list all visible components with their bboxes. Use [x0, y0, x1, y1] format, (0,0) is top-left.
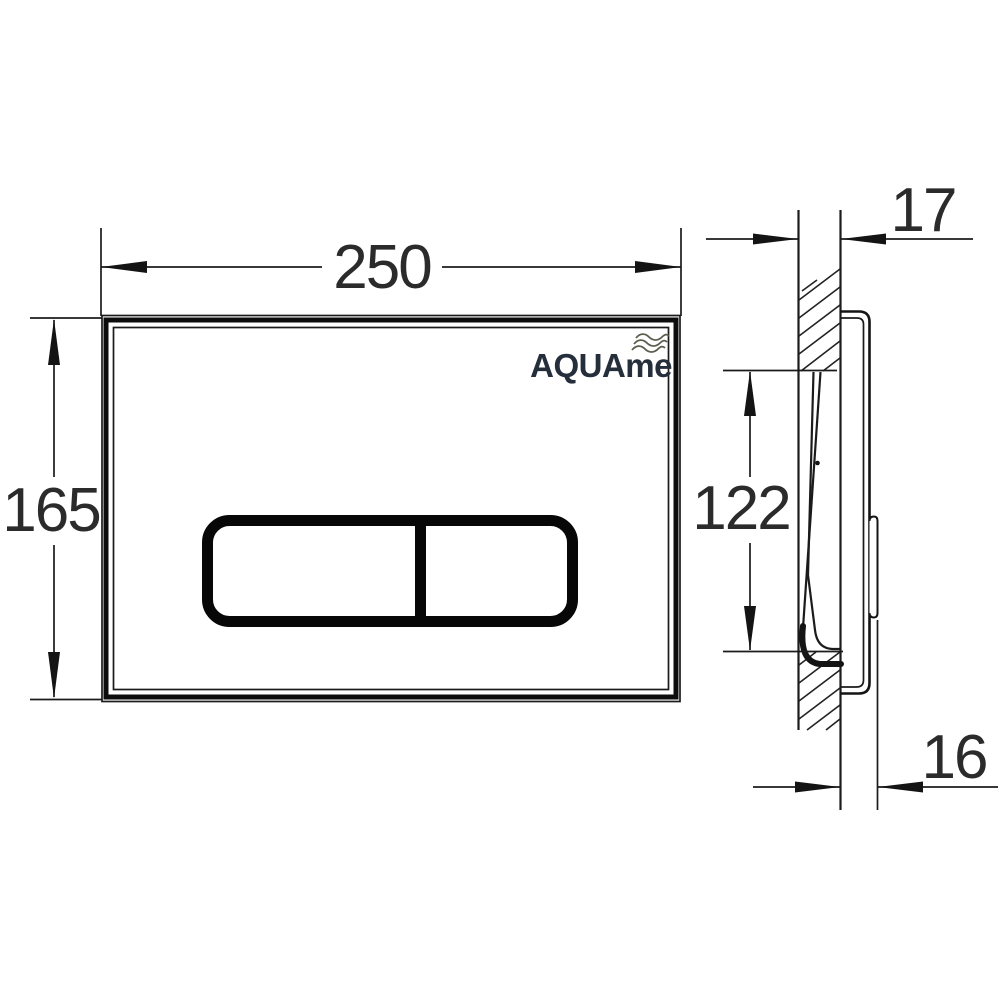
- width-value: 250: [333, 233, 431, 302]
- drawing-canvas: AQUAme 250 165: [0, 0, 1000, 1000]
- flush-buttons: [208, 520, 573, 622]
- mounting-mechanism: [802, 372, 841, 664]
- arrowhead-down: [48, 652, 60, 699]
- arrowhead-right: [753, 234, 798, 245]
- wall-hatching-top: [799, 269, 840, 371]
- arrowhead-up: [744, 371, 756, 416]
- arrowhead-left: [101, 261, 147, 273]
- buttons-outline: [208, 521, 573, 622]
- clamp-hook-inner: [808, 575, 841, 649]
- logo: AQUAme: [530, 334, 672, 384]
- arrowhead-right: [635, 261, 681, 273]
- profile-outer: [840, 312, 870, 694]
- arrowhead-down: [744, 606, 756, 651]
- protrusion-dimension: 16: [753, 620, 998, 810]
- side-view: [799, 210, 878, 810]
- technical-drawing: AQUAme 250 165: [0, 0, 1000, 1000]
- height-dimension: 165: [2, 318, 102, 700]
- height-value: 165: [2, 476, 99, 545]
- arrowhead-left: [878, 782, 923, 793]
- front-view: AQUAme: [102, 316, 680, 702]
- button-profile-bump: [870, 517, 878, 618]
- arrowhead-up: [48, 319, 60, 365]
- plate-side-profile: [840, 312, 878, 694]
- arrowhead-right: [795, 782, 840, 793]
- width-dimension: 250: [101, 228, 681, 316]
- cutout-height-dimension: 122: [692, 371, 843, 652]
- pivot-dot: [815, 461, 820, 466]
- arrowhead-left: [841, 234, 886, 245]
- cutout-height-value: 122: [692, 474, 789, 543]
- protrusion-value: 16: [922, 723, 987, 792]
- logo-text: AQUAme: [530, 347, 672, 384]
- profile-inner: [840, 318, 864, 687]
- inset-depth-value: 17: [891, 176, 956, 245]
